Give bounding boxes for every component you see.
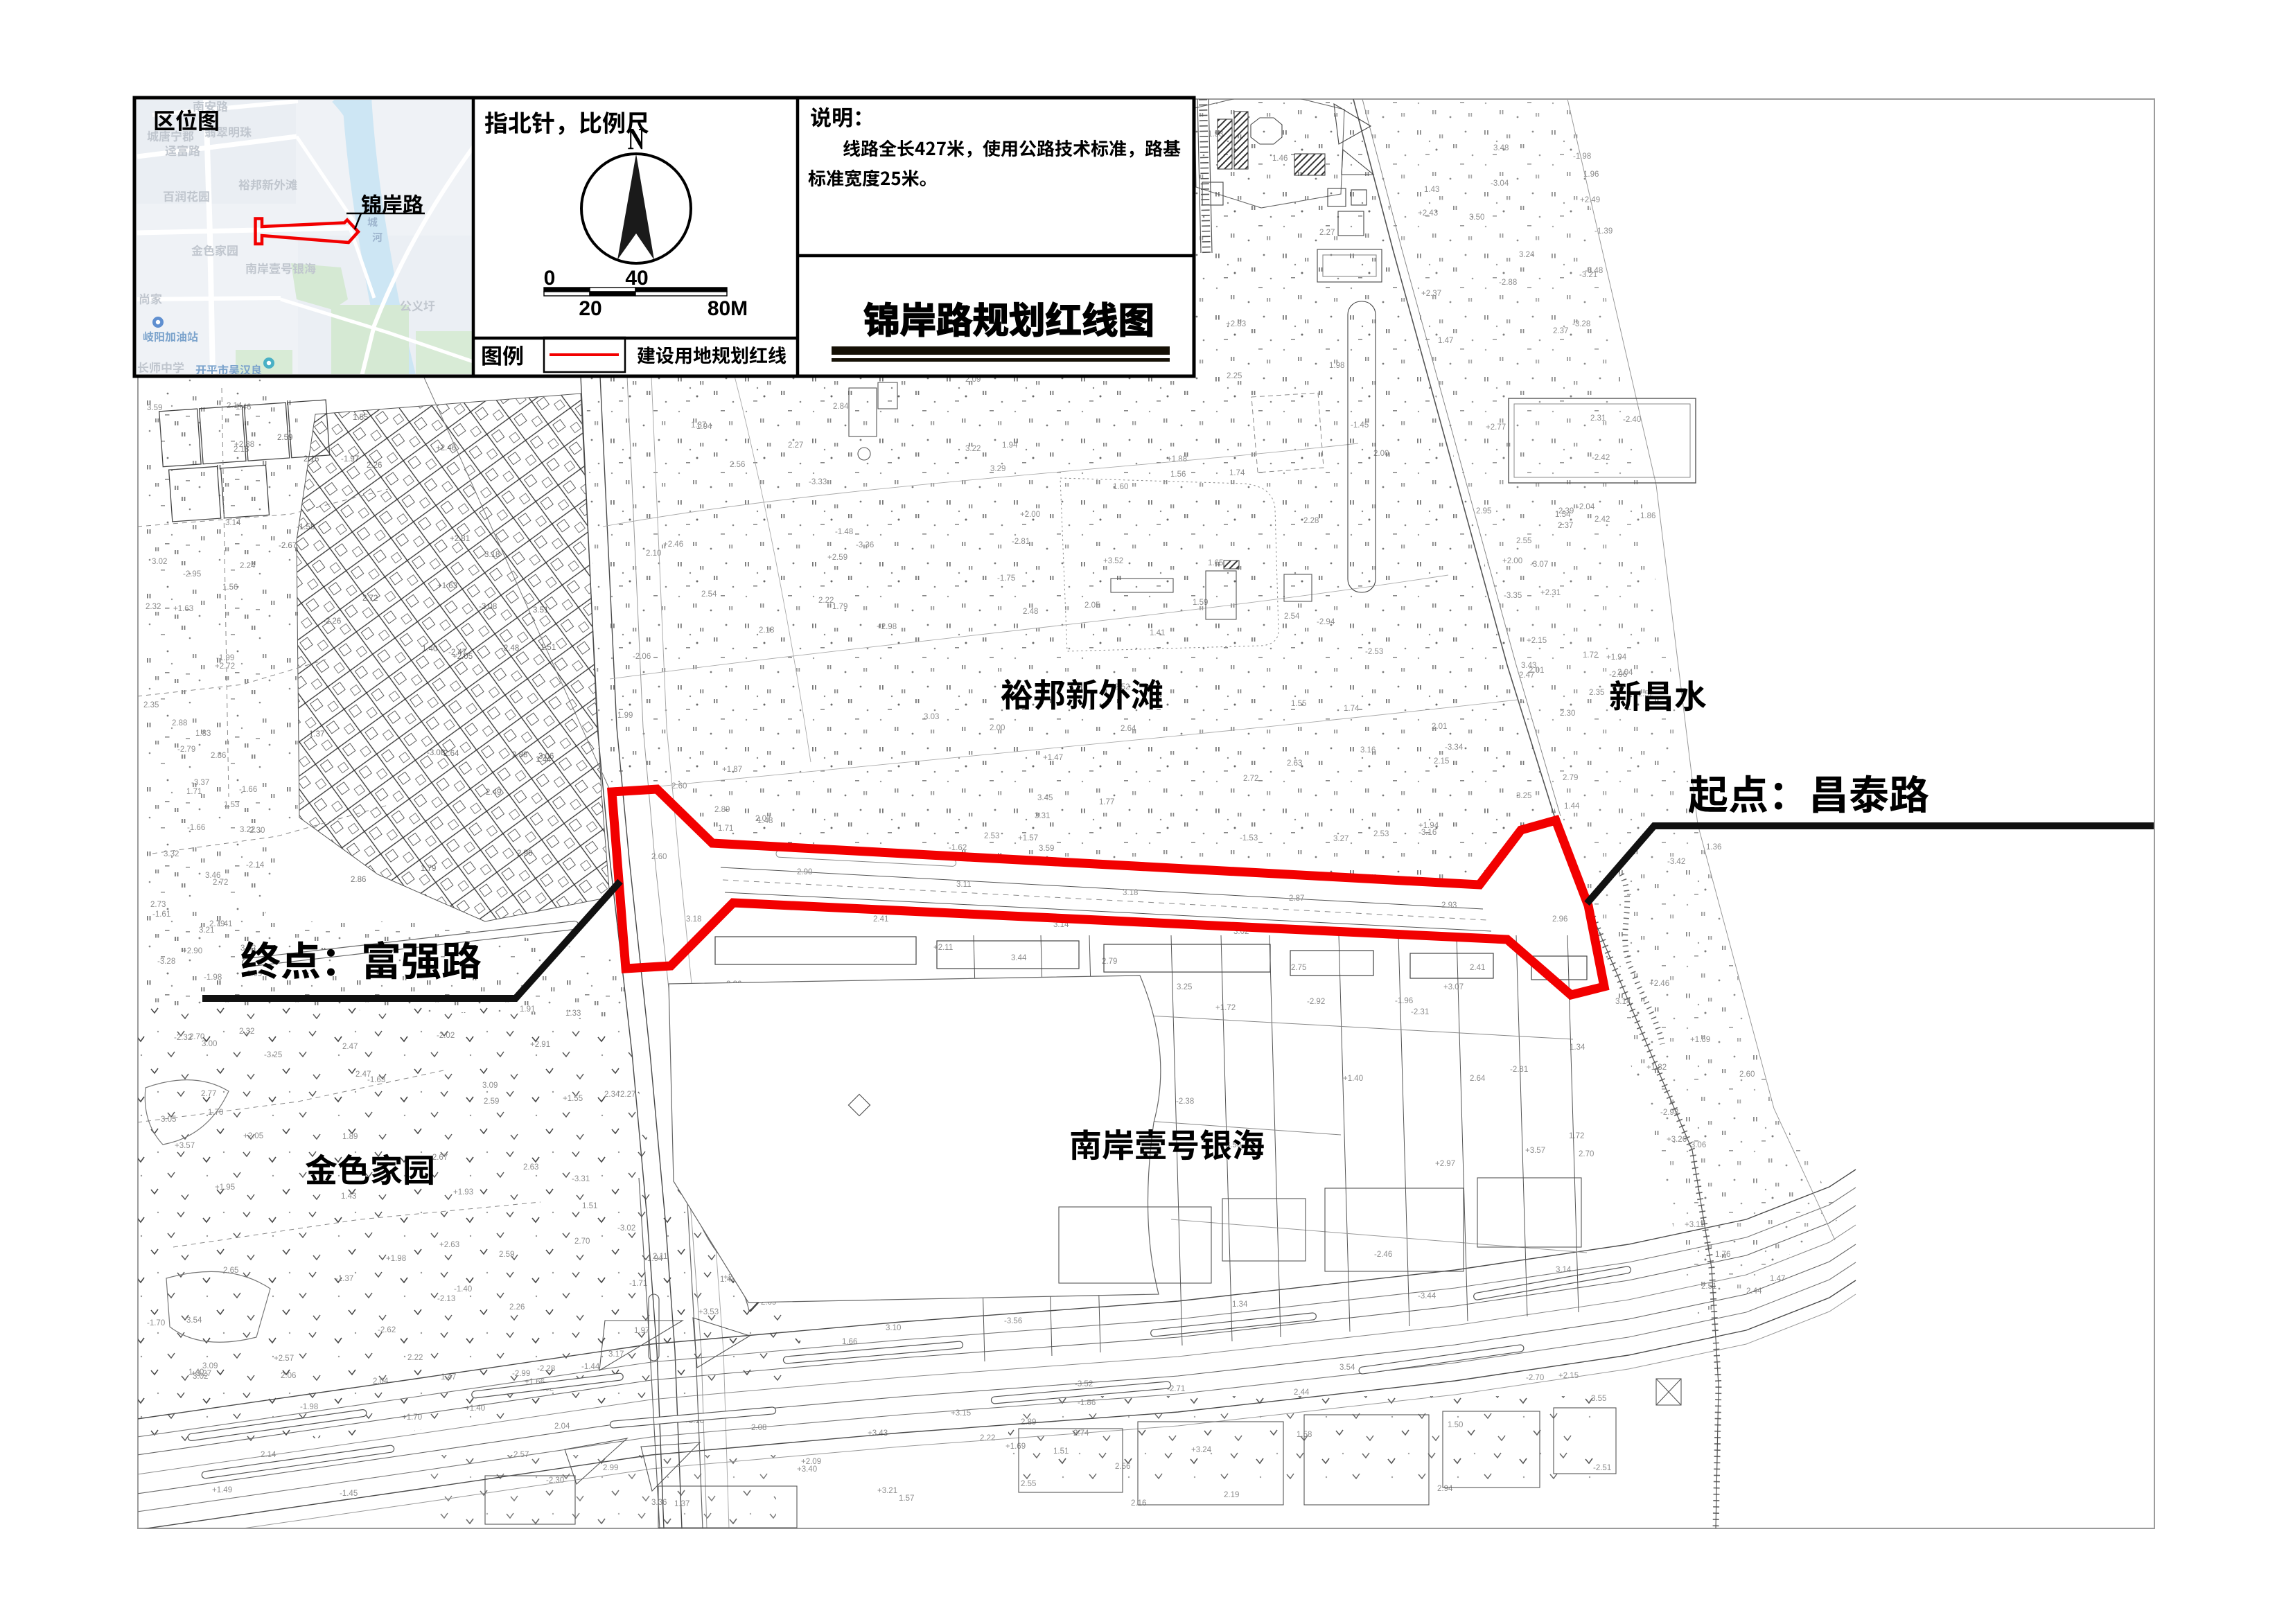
svg-text:2.64: 2.64 bbox=[1121, 725, 1136, 733]
svg-text:-3.04: -3.04 bbox=[1491, 179, 1509, 188]
svg-text:-1.98: -1.98 bbox=[204, 973, 222, 982]
svg-text:1.47: 1.47 bbox=[1438, 337, 1453, 345]
svg-text:+3.43: +3.43 bbox=[868, 1429, 888, 1438]
svg-text:-1.61: -1.61 bbox=[152, 910, 170, 919]
svg-text:1.89: 1.89 bbox=[342, 1133, 358, 1141]
svg-text:-3.06: -3.06 bbox=[1688, 1141, 1706, 1149]
svg-text:-1.45: -1.45 bbox=[1351, 421, 1369, 430]
svg-text:-2.53: -2.53 bbox=[1365, 648, 1383, 656]
svg-text:1.71: 1.71 bbox=[186, 788, 202, 796]
svg-text:-3.28: -3.28 bbox=[157, 957, 175, 966]
svg-text:+2.91: +2.91 bbox=[530, 1041, 550, 1049]
svg-text:-2.04: -2.04 bbox=[1576, 503, 1595, 511]
svg-text:-2.88: -2.88 bbox=[1499, 279, 1517, 287]
svg-text:2.47: 2.47 bbox=[355, 1070, 371, 1079]
svg-text:+2.46: +2.46 bbox=[1649, 980, 1669, 988]
svg-text:1.43: 1.43 bbox=[1424, 186, 1439, 194]
svg-text:2.47: 2.47 bbox=[342, 1043, 358, 1051]
svg-text:1.44: 1.44 bbox=[1564, 802, 1580, 811]
svg-text:1.33: 1.33 bbox=[565, 1009, 581, 1018]
svg-text:2.73: 2.73 bbox=[150, 901, 166, 909]
svg-text:3.22: 3.22 bbox=[965, 445, 981, 453]
svg-text:+2.00: +2.00 bbox=[1502, 557, 1522, 565]
svg-text:2.72: 2.72 bbox=[1243, 775, 1258, 783]
svg-text:2.26: 2.26 bbox=[509, 1303, 525, 1312]
svg-text:2.84: 2.84 bbox=[833, 403, 849, 411]
svg-text:+3.11: +3.11 bbox=[1685, 1221, 1704, 1229]
svg-text:2.64: 2.64 bbox=[1470, 1075, 1486, 1083]
svg-text:1.55: 1.55 bbox=[1291, 700, 1306, 708]
svg-text:+2.63: +2.63 bbox=[439, 1241, 459, 1249]
svg-text:2.25: 2.25 bbox=[1227, 372, 1242, 380]
svg-text:-3.34: -3.34 bbox=[1445, 743, 1464, 752]
svg-text:3.25: 3.25 bbox=[1516, 792, 1531, 800]
svg-text:3.50: 3.50 bbox=[1469, 213, 1484, 222]
svg-text:3.22: 3.22 bbox=[240, 826, 255, 834]
svg-text:2.22: 2.22 bbox=[407, 1354, 423, 1362]
svg-text:+2.00: +2.00 bbox=[1020, 511, 1040, 519]
svg-text:1.74: 1.74 bbox=[1344, 705, 1360, 713]
svg-text:-3.44: -3.44 bbox=[1418, 1292, 1437, 1300]
svg-text:2.87: 2.87 bbox=[1289, 894, 1304, 903]
svg-text:1.56: 1.56 bbox=[1170, 470, 1186, 479]
svg-text:+3.57: +3.57 bbox=[1525, 1147, 1545, 1155]
svg-text:+1.69: +1.69 bbox=[1690, 1036, 1710, 1044]
svg-text:3.16: 3.16 bbox=[1360, 746, 1376, 754]
svg-text:1.74: 1.74 bbox=[1229, 469, 1245, 477]
svg-text:+1.98: +1.98 bbox=[386, 1255, 406, 1263]
svg-text:+3.40: +3.40 bbox=[797, 1465, 817, 1474]
svg-text:2.32: 2.32 bbox=[239, 1027, 254, 1036]
svg-text:2.70: 2.70 bbox=[574, 1237, 590, 1246]
svg-text:2.34: 2.34 bbox=[604, 1091, 620, 1099]
svg-text:+1.57: +1.57 bbox=[1018, 834, 1038, 842]
svg-text:1.34: 1.34 bbox=[1570, 1043, 1585, 1052]
svg-text:2.53: 2.53 bbox=[1373, 830, 1389, 838]
svg-text:1.46: 1.46 bbox=[1272, 155, 1288, 163]
svg-text:+1.72: +1.72 bbox=[1215, 1004, 1236, 1012]
svg-text:1.41: 1.41 bbox=[1150, 629, 1165, 637]
svg-text:-2.81: -2.81 bbox=[1510, 1066, 1528, 1074]
svg-text:-3.28: -3.28 bbox=[1572, 320, 1590, 328]
svg-text:1.76: 1.76 bbox=[1715, 1251, 1730, 1259]
svg-text:-3.42: -3.42 bbox=[1667, 858, 1685, 866]
svg-text:2.54: 2.54 bbox=[701, 590, 717, 599]
svg-text:-2.38: -2.38 bbox=[1176, 1097, 1194, 1106]
svg-text:-2.28: -2.28 bbox=[537, 1365, 555, 1373]
svg-text:2.27: 2.27 bbox=[1319, 229, 1335, 237]
svg-text:-3.07: -3.07 bbox=[1530, 561, 1548, 569]
svg-text:2.30: 2.30 bbox=[1560, 709, 1575, 718]
svg-text:3.11: 3.11 bbox=[956, 881, 972, 889]
svg-text:-3.25: -3.25 bbox=[264, 1051, 282, 1059]
svg-text:3.55: 3.55 bbox=[1591, 1395, 1606, 1403]
svg-text:+2.72: +2.72 bbox=[215, 662, 235, 671]
svg-text:-2.96: -2.96 bbox=[1609, 671, 1627, 679]
svg-text:-2.62: -2.62 bbox=[378, 1326, 396, 1334]
svg-text:+3.57: +3.57 bbox=[175, 1142, 195, 1150]
svg-text:1.65: 1.65 bbox=[1208, 559, 1223, 567]
svg-text:1.48: 1.48 bbox=[757, 817, 773, 825]
svg-text:2.11: 2.11 bbox=[653, 1253, 668, 1261]
svg-text:-1.71: -1.71 bbox=[629, 1280, 647, 1288]
svg-text:2.63: 2.63 bbox=[523, 1163, 538, 1172]
svg-text:1.51: 1.51 bbox=[582, 1202, 597, 1210]
svg-text:2.41: 2.41 bbox=[1470, 964, 1485, 972]
svg-text:-2.06: -2.06 bbox=[633, 653, 651, 661]
svg-text:+1.95: +1.95 bbox=[215, 1183, 235, 1192]
svg-text:1.97: 1.97 bbox=[634, 1327, 649, 1335]
svg-text:-3.36: -3.36 bbox=[856, 541, 874, 549]
svg-text:2.15: 2.15 bbox=[1434, 757, 1449, 766]
svg-text:2.31: 2.31 bbox=[1590, 414, 1606, 423]
svg-text:2.70: 2.70 bbox=[1579, 1150, 1594, 1158]
svg-text:3.29: 3.29 bbox=[990, 465, 1005, 473]
svg-text:+3.27: +3.27 bbox=[191, 1370, 211, 1378]
svg-text:2.18: 2.18 bbox=[759, 626, 774, 635]
svg-text:2.72: 2.72 bbox=[213, 879, 228, 887]
svg-text:+3.07: +3.07 bbox=[1443, 983, 1464, 991]
svg-text:-2.46: -2.46 bbox=[1374, 1251, 1392, 1259]
svg-text:-2.40: -2.40 bbox=[1623, 416, 1641, 424]
svg-text:3.32: 3.32 bbox=[164, 850, 179, 858]
svg-text:3.09: 3.09 bbox=[202, 1362, 218, 1370]
svg-text:2.89: 2.89 bbox=[714, 806, 730, 814]
svg-text:+3.52: +3.52 bbox=[1103, 557, 1123, 565]
svg-text:1.72: 1.72 bbox=[1569, 1132, 1584, 1140]
svg-text:-2.95: -2.95 bbox=[183, 570, 201, 579]
svg-text:2.22: 2.22 bbox=[818, 597, 834, 605]
svg-text:2.63: 2.63 bbox=[1287, 759, 1302, 768]
svg-text:2.54: 2.54 bbox=[1284, 612, 1300, 621]
svg-text:2.05: 2.05 bbox=[1084, 601, 1100, 610]
svg-text:+1.47: +1.47 bbox=[1043, 754, 1063, 762]
svg-text:3.59: 3.59 bbox=[1039, 845, 1054, 853]
svg-text:+1.49: +1.49 bbox=[212, 1486, 232, 1494]
svg-text:+2.05: +2.05 bbox=[243, 1132, 263, 1140]
svg-text:-1.66: -1.66 bbox=[239, 786, 257, 794]
svg-text:1.91: 1.91 bbox=[520, 1005, 535, 1014]
svg-text:2.35: 2.35 bbox=[143, 701, 159, 709]
svg-text:+2.98: +2.98 bbox=[877, 623, 897, 631]
svg-text:+1.88: +1.88 bbox=[1167, 455, 1187, 464]
svg-text:1.99: 1.99 bbox=[617, 712, 633, 720]
svg-text:3.18: 3.18 bbox=[1123, 889, 1138, 897]
svg-text:2.53: 2.53 bbox=[984, 832, 999, 840]
svg-text:+1.93: +1.93 bbox=[453, 1188, 473, 1197]
svg-text:2.42: 2.42 bbox=[1594, 515, 1610, 524]
svg-text:+2.97: +2.97 bbox=[1435, 1160, 1455, 1168]
svg-text:2.96: 2.96 bbox=[1552, 915, 1567, 924]
svg-text:2.16: 2.16 bbox=[1131, 1499, 1146, 1508]
svg-text:1.94: 1.94 bbox=[696, 423, 712, 431]
svg-text:+1.87: +1.87 bbox=[722, 766, 742, 774]
svg-text:-2.30: -2.30 bbox=[546, 1476, 564, 1485]
svg-text:3.44: 3.44 bbox=[1011, 954, 1027, 962]
svg-text:3.24: 3.24 bbox=[1519, 251, 1535, 259]
svg-text:2.60: 2.60 bbox=[1739, 1070, 1755, 1079]
svg-text:2.32: 2.32 bbox=[146, 603, 161, 611]
svg-text:3.48: 3.48 bbox=[1493, 144, 1509, 152]
svg-text:-1.70: -1.70 bbox=[147, 1319, 165, 1327]
svg-text:3.36: 3.36 bbox=[651, 1499, 667, 1507]
svg-text:-2.70: -2.70 bbox=[1526, 1374, 1544, 1382]
svg-text:-3.52: -3.52 bbox=[1075, 1380, 1093, 1388]
svg-text:2.99: 2.99 bbox=[603, 1464, 618, 1472]
svg-text:2.95: 2.95 bbox=[1476, 507, 1491, 515]
svg-text:2.24: 2.24 bbox=[240, 562, 256, 570]
svg-text:N: N bbox=[628, 122, 645, 156]
svg-text:2.88: 2.88 bbox=[172, 719, 187, 727]
svg-text:+1.40: +1.40 bbox=[1343, 1075, 1363, 1083]
svg-text:-2.81: -2.81 bbox=[1012, 538, 1030, 546]
svg-text:+2.90: +2.90 bbox=[182, 947, 202, 955]
svg-text:2.60: 2.60 bbox=[651, 853, 667, 861]
svg-text:2.44: 2.44 bbox=[1294, 1388, 1310, 1397]
svg-text:-3.02: -3.02 bbox=[617, 1224, 635, 1233]
svg-text:2.04: 2.04 bbox=[554, 1422, 570, 1431]
svg-text:2.22: 2.22 bbox=[980, 1434, 995, 1442]
svg-text:2.00: 2.00 bbox=[990, 724, 1005, 732]
svg-text:3.54: 3.54 bbox=[186, 1316, 202, 1325]
svg-text:-2.94: -2.94 bbox=[1317, 618, 1335, 626]
svg-text:-1.98: -1.98 bbox=[300, 1403, 318, 1411]
svg-text:+2.77: +2.77 bbox=[1486, 423, 1506, 432]
svg-text:2.56: 2.56 bbox=[730, 461, 745, 469]
svg-text:1.50: 1.50 bbox=[1448, 1421, 1463, 1429]
svg-text:1.43: 1.43 bbox=[341, 1192, 356, 1201]
svg-text:2.77: 2.77 bbox=[201, 1090, 216, 1098]
svg-text:-3.56: -3.56 bbox=[1004, 1317, 1022, 1325]
svg-text:3.02: 3.02 bbox=[152, 558, 167, 566]
svg-text:-3.33: -3.33 bbox=[809, 478, 827, 486]
svg-text:1.86: 1.86 bbox=[1640, 512, 1655, 520]
svg-text:1.37: 1.37 bbox=[674, 1500, 689, 1508]
svg-text:3.27: 3.27 bbox=[1333, 835, 1348, 843]
svg-text:+1.63: +1.63 bbox=[173, 605, 193, 613]
svg-text:2.41: 2.41 bbox=[873, 915, 888, 924]
svg-text:+1.94: +1.94 bbox=[1418, 822, 1439, 830]
svg-text:+1.69: +1.69 bbox=[1005, 1442, 1026, 1451]
svg-text:1.51: 1.51 bbox=[1053, 1447, 1069, 1456]
svg-text:1.98: 1.98 bbox=[1329, 362, 1344, 370]
svg-text:2.55: 2.55 bbox=[1021, 1480, 1036, 1488]
svg-text:2.19: 2.19 bbox=[1224, 1491, 1239, 1499]
svg-text:-2.13: -2.13 bbox=[437, 1295, 455, 1303]
svg-text:2.27: 2.27 bbox=[788, 441, 803, 450]
svg-text:40: 40 bbox=[625, 267, 648, 290]
svg-text:1.94: 1.94 bbox=[1002, 441, 1018, 450]
svg-text:-2.92: -2.92 bbox=[1307, 998, 1325, 1006]
svg-text:2.86: 2.86 bbox=[351, 876, 366, 884]
svg-text:+2.57: +2.57 bbox=[274, 1354, 294, 1363]
svg-text:+1.40: +1.40 bbox=[465, 1404, 485, 1413]
svg-text:2.86: 2.86 bbox=[211, 752, 226, 760]
svg-text:-3.37: -3.37 bbox=[191, 779, 209, 787]
svg-text:3.25: 3.25 bbox=[1177, 983, 1192, 991]
svg-text:-1.66: -1.66 bbox=[187, 824, 205, 832]
svg-text:-1.96: -1.96 bbox=[1395, 997, 1413, 1005]
svg-text:+2.37: +2.37 bbox=[1421, 290, 1441, 298]
svg-text:-2.67: -2.67 bbox=[279, 542, 297, 550]
svg-text:+3.53: +3.53 bbox=[699, 1308, 719, 1316]
svg-text:2.75: 2.75 bbox=[1291, 964, 1306, 972]
svg-text:-2.51: -2.51 bbox=[1593, 1464, 1611, 1472]
svg-text:-1.40: -1.40 bbox=[454, 1285, 472, 1294]
svg-text:3.10: 3.10 bbox=[886, 1324, 901, 1332]
svg-text:-1.62: -1.62 bbox=[949, 844, 967, 852]
svg-text:-3.31: -3.31 bbox=[572, 1175, 590, 1183]
svg-text:3.45: 3.45 bbox=[1037, 794, 1053, 802]
svg-text:0: 0 bbox=[544, 267, 556, 290]
svg-text:1.79: 1.79 bbox=[832, 603, 847, 611]
svg-text:80M: 80M bbox=[708, 297, 748, 320]
svg-text:3.09: 3.09 bbox=[482, 1082, 498, 1090]
svg-text:2.06: 2.06 bbox=[281, 1372, 296, 1380]
svg-text:1.71: 1.71 bbox=[718, 824, 733, 833]
svg-text:3.03: 3.03 bbox=[924, 713, 939, 721]
svg-text:3.54: 3.54 bbox=[1339, 1363, 1355, 1372]
svg-text:+3.24: +3.24 bbox=[1191, 1446, 1212, 1454]
svg-text:-2.14: -2.14 bbox=[246, 861, 265, 870]
svg-text:3.00: 3.00 bbox=[202, 1040, 217, 1048]
svg-text:2.60: 2.60 bbox=[671, 782, 687, 791]
svg-text:2.28: 2.28 bbox=[1303, 517, 1319, 525]
svg-text:20: 20 bbox=[579, 297, 601, 320]
svg-text:+1.55: +1.55 bbox=[563, 1095, 583, 1103]
svg-text:2.79: 2.79 bbox=[1563, 774, 1578, 782]
svg-text:2.37: 2.37 bbox=[1553, 327, 1568, 335]
svg-text:-1.45: -1.45 bbox=[340, 1490, 358, 1498]
svg-text:3.14: 3.14 bbox=[225, 519, 241, 527]
svg-text:2.01: 2.01 bbox=[1432, 723, 1447, 731]
svg-text:2.01: 2.01 bbox=[1529, 667, 1544, 675]
svg-text:1.60: 1.60 bbox=[1113, 483, 1128, 491]
svg-text:-2.42: -2.42 bbox=[1592, 454, 1610, 462]
svg-text:-2.02: -2.02 bbox=[437, 1032, 455, 1040]
svg-text:-2.39: -2.39 bbox=[1556, 507, 1574, 515]
svg-text:2.55: 2.55 bbox=[1516, 537, 1531, 545]
svg-text:1.83: 1.83 bbox=[195, 730, 211, 738]
svg-text:3.05: 3.05 bbox=[161, 1115, 176, 1124]
svg-text:-2.79: -2.79 bbox=[177, 745, 195, 754]
svg-text:2.93: 2.93 bbox=[1441, 901, 1457, 910]
svg-text:2.35: 2.35 bbox=[1589, 689, 1604, 697]
svg-text:+2.11: +2.11 bbox=[933, 944, 953, 952]
svg-text:+2.43: +2.43 bbox=[1418, 209, 1438, 218]
svg-text:3.21: 3.21 bbox=[199, 926, 214, 935]
svg-text:+3.26: +3.26 bbox=[1667, 1136, 1687, 1144]
svg-text:+2.09: +2.09 bbox=[801, 1458, 821, 1466]
svg-text:1.56: 1.56 bbox=[222, 583, 238, 592]
svg-text:-2.99: -2.99 bbox=[512, 1370, 530, 1378]
svg-text:1.36: 1.36 bbox=[1706, 843, 1721, 851]
svg-text:-2.31: -2.31 bbox=[1411, 1008, 1429, 1016]
svg-text:-1.48: -1.48 bbox=[835, 528, 853, 536]
svg-text:1.53: 1.53 bbox=[224, 801, 239, 809]
svg-text:2.37: 2.37 bbox=[1558, 522, 1573, 530]
svg-text:-1.75: -1.75 bbox=[997, 574, 1015, 583]
svg-text:-2.32: -2.32 bbox=[174, 1034, 192, 1042]
svg-text:+2.31: +2.31 bbox=[1540, 589, 1561, 597]
svg-text:1.34: 1.34 bbox=[1232, 1300, 1248, 1309]
svg-text:+2.59: +2.59 bbox=[827, 554, 847, 562]
svg-text:-3.21: -3.21 bbox=[1579, 271, 1597, 279]
svg-text:1.72: 1.72 bbox=[1583, 651, 1598, 660]
svg-text:-1.53: -1.53 bbox=[1240, 834, 1258, 842]
svg-text:+2.46: +2.46 bbox=[663, 540, 683, 549]
svg-text:3.31: 3.31 bbox=[1035, 812, 1050, 820]
svg-text:3.18: 3.18 bbox=[686, 915, 701, 924]
svg-text:+2.15: +2.15 bbox=[1527, 637, 1547, 645]
svg-text:2.59: 2.59 bbox=[499, 1251, 514, 1259]
svg-text:2.48: 2.48 bbox=[1023, 608, 1038, 616]
svg-text:2.27: 2.27 bbox=[620, 1091, 635, 1099]
svg-text:-1.37: -1.37 bbox=[335, 1275, 353, 1283]
svg-text:2.59: 2.59 bbox=[484, 1097, 499, 1106]
svg-text:-1.99: -1.99 bbox=[216, 654, 234, 662]
svg-text:2.90: 2.90 bbox=[797, 868, 812, 876]
svg-text:+1.94: +1.94 bbox=[1606, 653, 1627, 662]
svg-text:1.57: 1.57 bbox=[899, 1494, 914, 1503]
svg-text:+3.21: +3.21 bbox=[877, 1487, 897, 1495]
svg-text:+2.83: +2.83 bbox=[1226, 320, 1246, 328]
svg-text:-3.35: -3.35 bbox=[1504, 592, 1522, 600]
svg-text:2.94: 2.94 bbox=[1437, 1485, 1453, 1493]
svg-text:1.77: 1.77 bbox=[1099, 798, 1114, 806]
svg-text:-1.98: -1.98 bbox=[1573, 152, 1591, 161]
